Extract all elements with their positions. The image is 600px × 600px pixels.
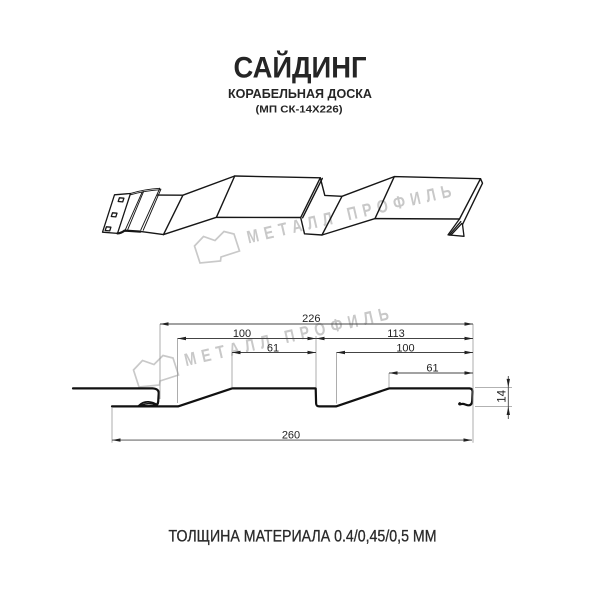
svg-text:61: 61 [267,342,279,354]
svg-text:226: 226 [302,313,320,325]
svg-text:ТОЛЩИНА МАТЕРИАЛА 0.4/0,45/0,5: ТОЛЩИНА МАТЕРИАЛА 0.4/0,45/0,5 ММ [169,528,437,546]
svg-text:100: 100 [396,342,414,354]
svg-text:113: 113 [387,328,405,340]
svg-text:САЙДИНГ: САЙДИНГ [234,51,367,85]
svg-text:61: 61 [426,362,438,374]
svg-text:100: 100 [233,328,251,340]
svg-text:МЕТАЛЛ ПРОФИЛЬ: МЕТАЛЛ ПРОФИЛЬ [245,181,454,248]
svg-text:МЕТАЛЛ ПРОФИЛЬ: МЕТАЛЛ ПРОФИЛЬ [182,304,391,371]
svg-text:14: 14 [496,389,508,402]
svg-text:(МП СК-14Х226): (МП СК-14Х226) [256,105,343,116]
svg-text:КОРАБЕЛЬНАЯ ДОСКА: КОРАБЕЛЬНАЯ ДОСКА [228,86,372,101]
svg-text:260: 260 [282,430,300,442]
